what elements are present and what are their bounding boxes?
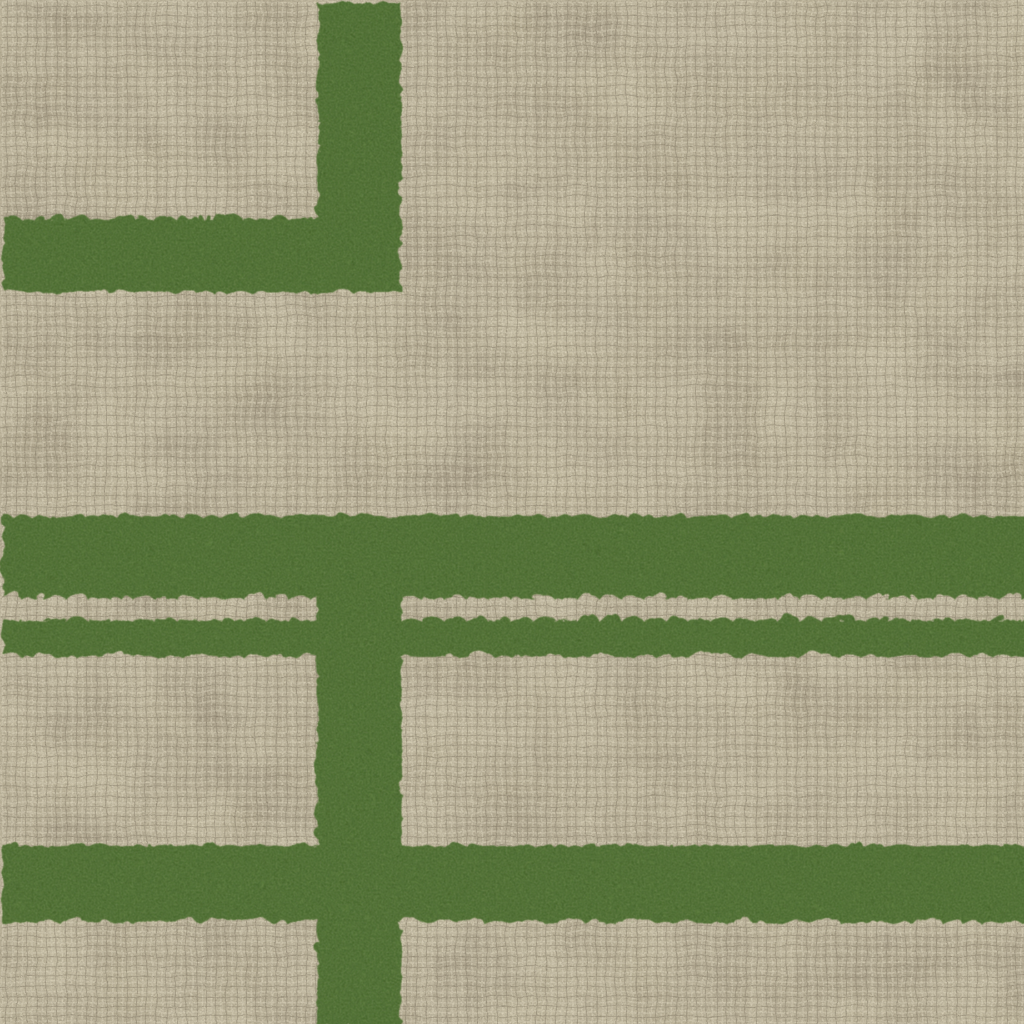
pile-sheen-overlay — [0, 0, 1024, 1024]
carpet-photo — [0, 0, 1024, 1024]
carpet-canvas — [0, 0, 1024, 1024]
